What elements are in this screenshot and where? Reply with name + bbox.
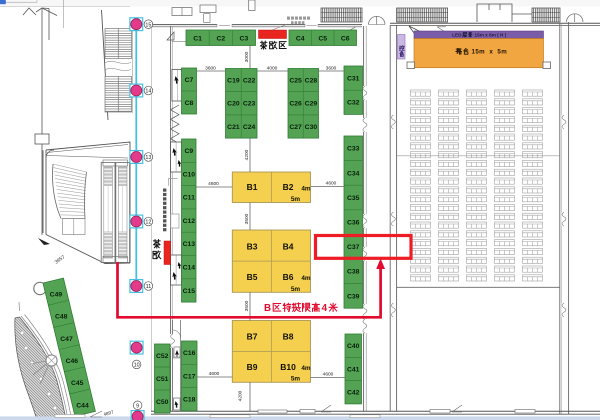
svg-text:B1: B1	[247, 182, 258, 192]
svg-text:C14: C14	[183, 265, 196, 272]
svg-text:C31: C31	[347, 76, 360, 83]
svg-text:3600: 3600	[205, 66, 216, 72]
svg-text:B9: B9	[247, 362, 258, 372]
svg-text:C35: C35	[347, 195, 360, 202]
svg-text:5m: 5m	[291, 196, 301, 203]
svg-text:5m: 5m	[291, 286, 301, 293]
svg-text:C9: C9	[184, 148, 193, 155]
svg-text:11: 11	[146, 284, 152, 290]
svg-text:C19: C19	[227, 78, 240, 85]
svg-text:C16: C16	[183, 350, 196, 357]
svg-text:C27: C27	[289, 124, 302, 131]
svg-text:C26: C26	[289, 101, 302, 108]
svg-text:C51: C51	[156, 376, 169, 383]
svg-text:C2: C2	[216, 35, 225, 42]
svg-text:C40: C40	[347, 343, 360, 350]
svg-text:B: B	[264, 303, 271, 314]
svg-text:C30: C30	[305, 124, 318, 131]
svg-text:C23: C23	[243, 101, 256, 108]
svg-text:C39: C39	[347, 293, 360, 300]
svg-text:C18: C18	[183, 397, 196, 404]
svg-text:LED: LED	[452, 33, 462, 38]
svg-text:C20: C20	[227, 101, 240, 108]
svg-text:3600: 3600	[326, 66, 337, 72]
svg-text:C17: C17	[183, 373, 196, 380]
svg-text:14: 14	[145, 89, 151, 95]
svg-text:C49: C49	[50, 292, 63, 299]
svg-text:3500: 3500	[244, 300, 250, 311]
svg-text:C12: C12	[183, 218, 196, 225]
svg-text:C29: C29	[305, 101, 318, 108]
svg-text:B2: B2	[283, 182, 294, 192]
svg-text:9: 9	[136, 403, 139, 409]
svg-text:12: 12	[145, 220, 151, 226]
svg-text:C25: C25	[289, 78, 302, 85]
svg-text:C15: C15	[183, 288, 196, 295]
svg-text:C1: C1	[193, 35, 202, 42]
svg-text:4600: 4600	[326, 180, 337, 186]
svg-text:4600: 4600	[209, 371, 220, 377]
svg-text:3500: 3500	[244, 213, 250, 224]
svg-text:4m: 4m	[301, 275, 311, 282]
svg-text:C44: C44	[76, 402, 89, 409]
svg-text:C52: C52	[156, 353, 169, 360]
svg-text:4: 4	[322, 303, 328, 314]
svg-text:C47: C47	[60, 336, 73, 343]
svg-text:4600: 4600	[208, 181, 219, 187]
svg-text:C34: C34	[347, 170, 360, 177]
svg-text:C28: C28	[305, 78, 318, 85]
svg-text:15m x 6m ( H ): 15m x 6m ( H )	[475, 33, 507, 38]
svg-text:4200: 4200	[244, 149, 250, 160]
svg-text:4200: 4200	[238, 390, 244, 401]
svg-text:B8: B8	[283, 332, 294, 342]
svg-text:3000: 3000	[244, 51, 250, 62]
svg-text:4m: 4m	[301, 365, 311, 372]
svg-text:C46: C46	[66, 358, 79, 365]
svg-text:C11: C11	[183, 195, 195, 202]
svg-text:15m x 5m: 15m x 5m	[472, 49, 508, 56]
svg-text:B7: B7	[247, 332, 258, 342]
svg-text:C10: C10	[183, 171, 196, 178]
svg-text:C6: C6	[341, 35, 350, 42]
svg-text:B6: B6	[283, 272, 294, 282]
svg-text:C48: C48	[55, 314, 68, 321]
svg-text:C50: C50	[156, 399, 169, 406]
svg-text:C38: C38	[347, 269, 360, 276]
svg-text:C21: C21	[227, 124, 240, 131]
svg-text:C8: C8	[185, 100, 194, 107]
svg-text:C41: C41	[347, 366, 360, 373]
svg-text:4000: 4000	[267, 66, 278, 72]
svg-text:13: 13	[145, 155, 151, 161]
svg-text:C42: C42	[347, 390, 360, 397]
svg-text:5m: 5m	[291, 376, 301, 383]
svg-text:C37: C37	[347, 244, 360, 251]
svg-text:B4: B4	[283, 242, 294, 252]
svg-text:C3: C3	[240, 35, 249, 42]
svg-text:C4: C4	[296, 35, 305, 42]
svg-text:B10: B10	[280, 362, 296, 372]
svg-text:4m: 4m	[301, 186, 311, 193]
svg-text:C32: C32	[347, 100, 360, 107]
svg-text:C13: C13	[183, 241, 196, 248]
svg-text:15: 15	[145, 22, 151, 28]
svg-text:C7: C7	[185, 77, 194, 84]
svg-text:C22: C22	[243, 78, 256, 85]
svg-text:4600: 4600	[323, 372, 334, 378]
svg-text:B3: B3	[247, 242, 258, 252]
svg-text:C36: C36	[347, 220, 360, 227]
svg-text:10: 10	[134, 363, 140, 369]
svg-text:C24: C24	[243, 124, 256, 131]
svg-text:C45: C45	[71, 380, 84, 387]
svg-text:B5: B5	[247, 272, 258, 282]
svg-text:C33: C33	[347, 146, 360, 153]
svg-text:C5: C5	[318, 35, 327, 42]
